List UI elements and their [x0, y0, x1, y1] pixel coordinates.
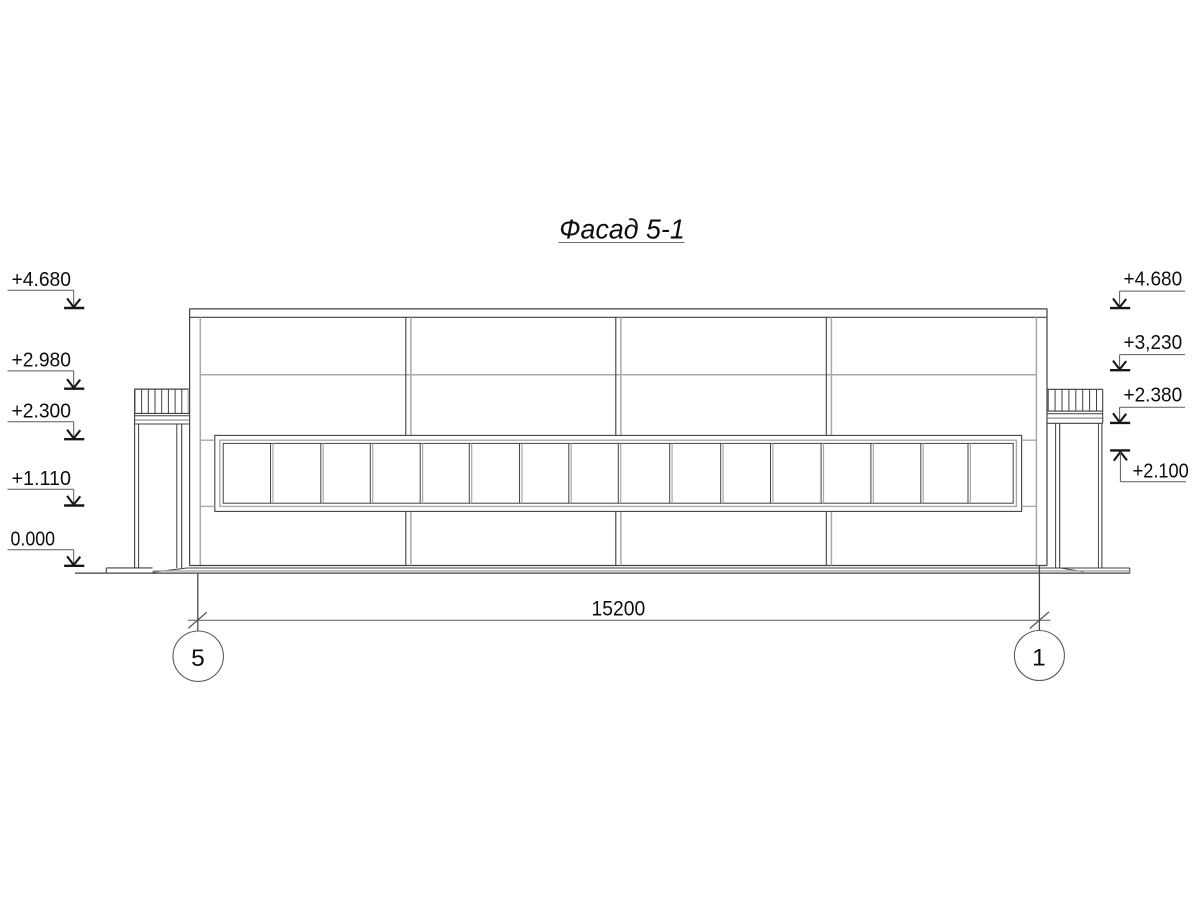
- svg-text:+4.680: +4.680: [1124, 269, 1183, 291]
- svg-text:0.000: 0.000: [11, 529, 56, 551]
- svg-text:15200: 15200: [592, 598, 646, 621]
- svg-text:+2.100: +2.100: [1133, 460, 1189, 482]
- svg-text:5: 5: [191, 645, 205, 672]
- svg-text:+2.380: +2.380: [1124, 385, 1183, 407]
- svg-text:Фасад 5-1: Фасад 5-1: [559, 214, 685, 245]
- svg-text:+3,230: +3,230: [1124, 332, 1183, 354]
- svg-text:1: 1: [1032, 645, 1046, 672]
- svg-text:+1.110: +1.110: [12, 468, 72, 490]
- svg-text:+2.980: +2.980: [12, 350, 72, 372]
- svg-text:+4.680: +4.680: [12, 269, 72, 291]
- svg-text:+2.300: +2.300: [12, 400, 72, 422]
